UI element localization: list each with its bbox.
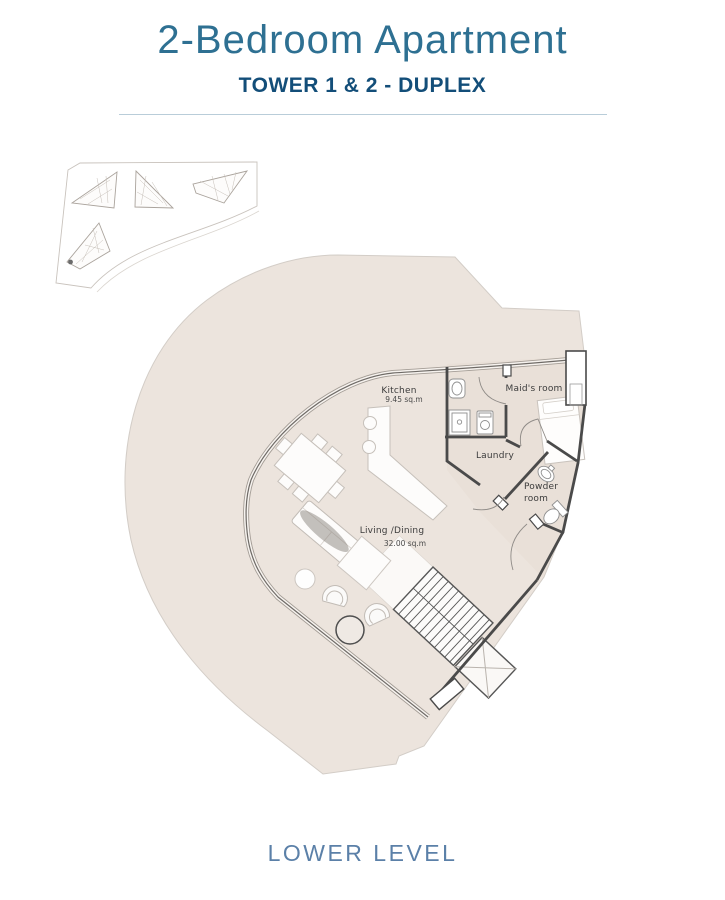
side-table: [295, 569, 315, 589]
bar-stool: [364, 417, 377, 430]
floor-plan-drawing: [0, 0, 725, 900]
round-table: [336, 616, 364, 644]
brochure-page: 2-Bedroom Apartment TOWER 1 & 2 - DUPLEX: [0, 0, 725, 900]
door-jamb: [503, 365, 511, 376]
room-area-kitchen: 9.45 sq.m: [385, 396, 422, 404]
level-label: LOWER LEVEL: [0, 840, 725, 867]
room-area-living: 32.00 sq.m: [384, 540, 426, 548]
room-label-maids: Maid's room: [506, 384, 563, 394]
window-pier: [566, 351, 586, 405]
room-label-powder: Powder room: [524, 481, 572, 505]
room-label-laundry: Laundry: [476, 451, 514, 461]
room-label-living: Living /Dining: [360, 526, 425, 536]
bar-stool: [363, 441, 376, 454]
